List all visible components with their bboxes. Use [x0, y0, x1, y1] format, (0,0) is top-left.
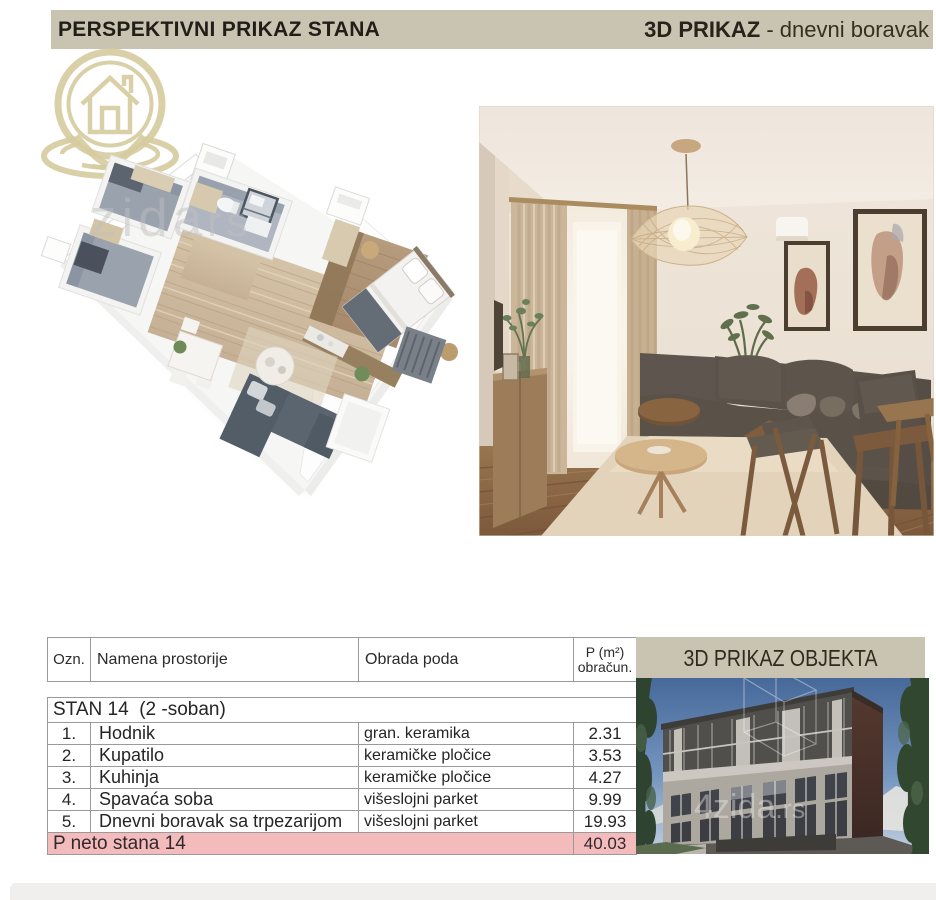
svg-text:4zida.rs: 4zida.rs [694, 788, 805, 826]
